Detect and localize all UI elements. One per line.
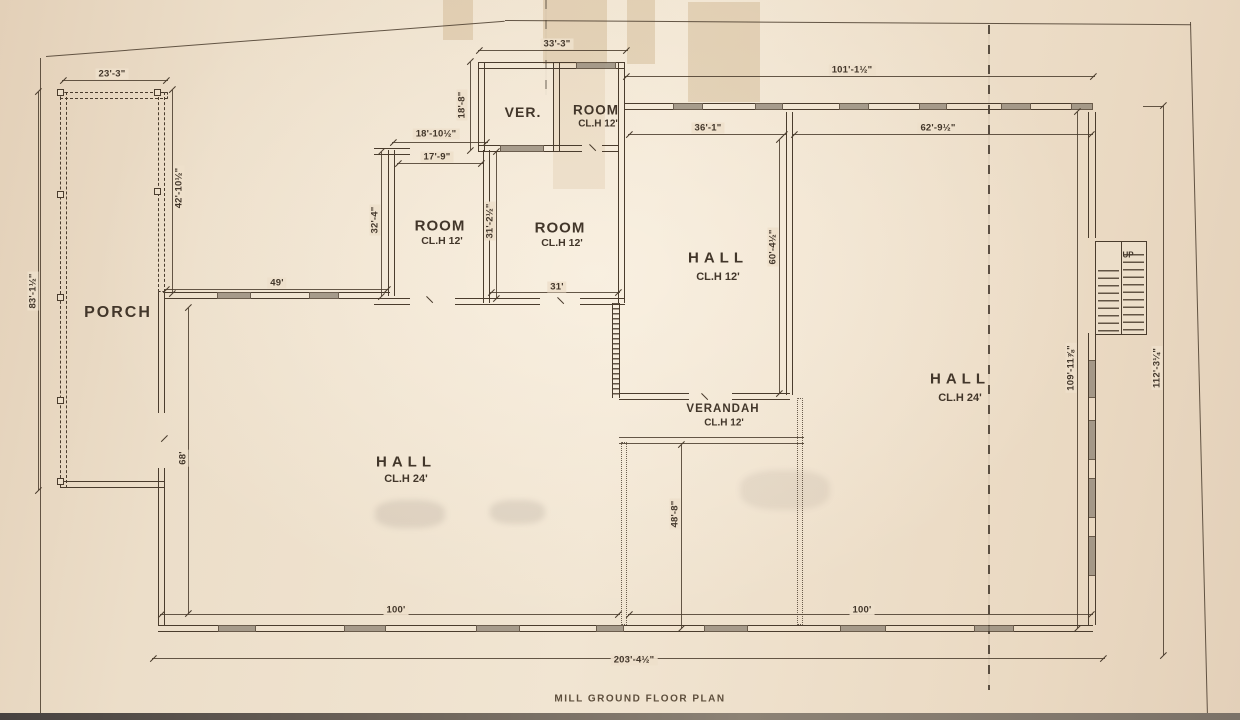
window [974, 625, 1014, 632]
west-wall [158, 292, 165, 413]
sheet-border-top [505, 20, 1191, 25]
smudge [375, 500, 445, 528]
door-tick [701, 393, 708, 400]
window [1088, 420, 1096, 460]
porch-column [57, 397, 64, 404]
porch-column [154, 89, 161, 96]
dim-label: 203'-4½" [611, 655, 658, 666]
tape-patch [627, 0, 655, 64]
wall [624, 625, 704, 632]
table-edge [0, 713, 1240, 720]
dim-line [496, 152, 497, 298]
wall [625, 103, 673, 110]
wall [869, 103, 919, 110]
window [840, 625, 886, 632]
porch-column [57, 191, 64, 198]
hall-center-ceiling: CL.H 12' [696, 271, 740, 283]
smudge [490, 500, 545, 524]
dim-label: 83'-1½" [28, 271, 39, 310]
dim-label: 23'-3" [96, 69, 129, 80]
dim-line [478, 50, 628, 51]
dim-line [1163, 106, 1164, 655]
window [1088, 536, 1096, 576]
wall [748, 625, 840, 632]
dim-label: 31' [547, 282, 566, 293]
dim-line [625, 76, 1095, 77]
sheet-border-left [40, 58, 41, 713]
hall-right-label: HALL [930, 371, 990, 388]
window [755, 103, 783, 110]
verandah-edge [619, 437, 804, 444]
dim-line [165, 289, 389, 290]
passage-wall [797, 398, 803, 625]
window [596, 625, 624, 632]
wall [251, 292, 309, 299]
verandah-label: VERANDAH [686, 403, 759, 415]
porch-column [154, 188, 161, 195]
dim-line [392, 142, 488, 143]
staircase [1095, 241, 1147, 335]
window [673, 103, 703, 110]
dim-label: 109'-11⅞" [1066, 343, 1077, 393]
wall [158, 625, 218, 632]
wall [478, 62, 576, 69]
wall [947, 103, 1001, 110]
dim-label: 31'-2½" [485, 201, 496, 240]
dim-label: 62'-9½" [917, 123, 958, 134]
dim-label: 48'-8" [670, 499, 681, 530]
window [344, 625, 386, 632]
dim-label: 68' [178, 449, 189, 466]
wall [256, 625, 344, 632]
wall [520, 625, 596, 632]
door-tick [557, 297, 564, 304]
dim-line [628, 134, 786, 135]
dim-line [470, 62, 471, 150]
window [1088, 478, 1096, 518]
room-top-ceiling: CL.H 12' [578, 119, 618, 130]
stairs-up-label: UP [1122, 251, 1133, 260]
wall [616, 62, 625, 69]
verandah-north-wall [619, 393, 689, 400]
porch-label: PORCH [84, 304, 152, 322]
window [1088, 360, 1096, 398]
wall [1031, 103, 1071, 110]
dim-line [62, 80, 168, 81]
dim-line [381, 152, 382, 296]
dim-line [1077, 112, 1078, 628]
wall [1014, 625, 1093, 632]
floor-plan-photo: UP 23'-3" 33'-3" 101'-1½" 83'-1½" 42'-10… [0, 0, 1240, 720]
dim-label: 18'-8" [457, 90, 468, 121]
window [500, 145, 544, 152]
room-center-east-wall [618, 62, 625, 303]
west-wall [158, 468, 165, 625]
room-center-label: ROOM [535, 220, 586, 237]
dim-line [397, 163, 483, 164]
verandah-north-wall [732, 393, 790, 400]
stair-run [1123, 254, 1144, 332]
hall-center-label: HALL [688, 250, 748, 267]
dim-label: 32'-4" [370, 205, 381, 236]
fold-crease [988, 25, 990, 690]
porch-south-wall [60, 481, 165, 488]
hall-left-label: HALL [376, 454, 436, 471]
window [576, 62, 616, 69]
dim-label: 42'-10½" [174, 166, 185, 211]
dim-label: 36'-1" [692, 123, 725, 134]
window [1001, 103, 1031, 110]
drawing-title: MILL GROUND FLOOR PLAN [554, 694, 725, 705]
window [217, 292, 251, 299]
dim-label: 100' [384, 605, 409, 616]
room-center-ceiling: CL.H 12' [541, 237, 583, 249]
window [919, 103, 947, 110]
tape-patch [443, 0, 473, 40]
ver-label: VER. [505, 104, 542, 120]
hatched-wall [612, 303, 620, 398]
dim-label: 101'-1½" [829, 65, 876, 76]
room-top-label: ROOM [573, 103, 619, 118]
dim-line [779, 140, 780, 393]
room-left-west-wall [388, 150, 395, 296]
door-tick [161, 435, 168, 442]
dim-line [793, 134, 1093, 135]
window [1071, 103, 1093, 110]
ver-west-wall [478, 62, 485, 152]
sheet-border-right [1190, 22, 1208, 714]
dim-label: 18'-10½" [413, 129, 460, 140]
sheet-border-top [46, 21, 505, 57]
verandah-ceiling: CL.H 12' [704, 418, 744, 429]
hall-divider-wall [786, 112, 793, 395]
wall [544, 145, 560, 152]
window [218, 625, 256, 632]
dim-label: 33'-3" [541, 39, 574, 50]
wall [886, 625, 974, 632]
porch-column [57, 89, 64, 96]
dim-label: 17'-9" [421, 152, 454, 163]
wall [386, 625, 476, 632]
dim-label: 100' [850, 605, 875, 616]
dim-label: 60'-4½" [768, 227, 779, 266]
tape-patch [688, 2, 760, 102]
door-tick [426, 296, 433, 303]
room-left-label: ROOM [415, 218, 466, 235]
window [476, 625, 520, 632]
passage-wall [621, 442, 627, 625]
wall [783, 103, 839, 110]
porch-column [57, 478, 64, 485]
wall [455, 298, 540, 305]
porch-column [57, 294, 64, 301]
window [839, 103, 869, 110]
wall [703, 103, 755, 110]
dim-label: 112'-3¼" [1152, 346, 1163, 390]
wall [560, 145, 582, 152]
hall-left-ceiling: CL.H 24' [384, 473, 428, 485]
wall [602, 145, 618, 152]
porch-west-wall [60, 92, 67, 488]
window [704, 625, 748, 632]
hall-right-ceiling: CL.H 24' [938, 392, 982, 404]
smudge [740, 470, 830, 510]
porch-north-wall [60, 92, 168, 99]
dim-line [681, 445, 682, 628]
dim-label: 49' [267, 278, 286, 289]
stair-run [1098, 270, 1119, 332]
ver-divider-wall [553, 62, 560, 152]
tape-patch [543, 0, 607, 64]
window [309, 292, 339, 299]
room-left-ceiling: CL.H 12' [421, 235, 463, 247]
